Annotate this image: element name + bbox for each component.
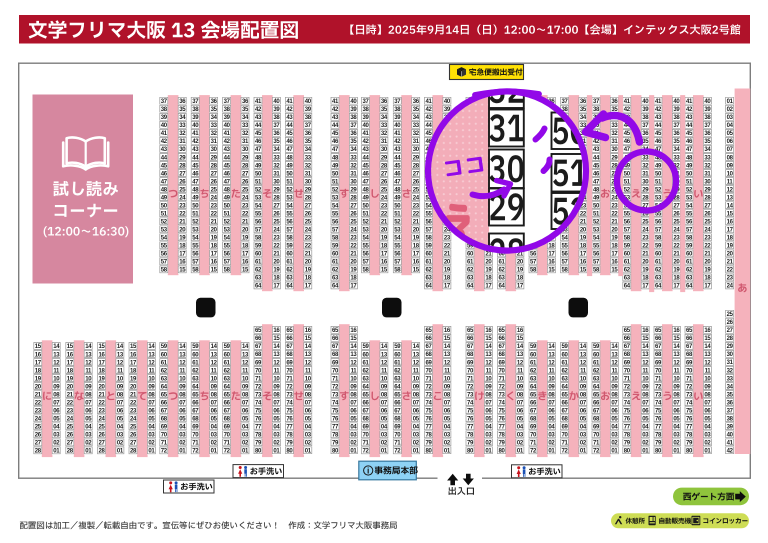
svg-text:72: 72 [332, 384, 339, 390]
svg-text:10: 10 [517, 376, 524, 382]
svg-text:15: 15 [548, 268, 555, 274]
svg-text:57: 57 [286, 228, 293, 234]
svg-text:24: 24 [350, 228, 357, 234]
svg-text:12: 12 [642, 360, 649, 366]
svg-text:27: 27 [704, 203, 711, 209]
svg-text:19: 19 [242, 236, 249, 242]
svg-text:62: 62 [655, 268, 662, 274]
svg-text:79: 79 [686, 441, 693, 447]
svg-text:10: 10 [727, 171, 734, 177]
svg-text:02: 02 [211, 441, 218, 447]
svg-text:39: 39 [161, 115, 168, 121]
svg-text:10: 10 [211, 376, 218, 382]
svg-text:24: 24 [673, 228, 680, 234]
svg-text:16: 16 [305, 328, 312, 334]
svg-text:73: 73 [686, 392, 693, 398]
svg-text:73: 73 [467, 392, 474, 398]
svg-text:06: 06 [642, 408, 649, 414]
svg-text:15: 15 [381, 268, 388, 274]
svg-text:61: 61 [530, 360, 537, 366]
svg-text:69: 69 [624, 360, 631, 366]
svg-text:18: 18 [673, 276, 680, 282]
svg-text:69: 69 [394, 425, 401, 431]
svg-text:30: 30 [381, 147, 388, 153]
svg-text:71: 71 [255, 376, 262, 382]
svg-text:78: 78 [499, 433, 506, 439]
svg-text:19: 19 [305, 268, 312, 274]
svg-text:13: 13 [673, 352, 680, 358]
svg-text:41: 41 [255, 99, 262, 105]
svg-text:09: 09 [148, 384, 155, 390]
svg-text:06: 06 [305, 408, 312, 414]
svg-text:63: 63 [499, 276, 506, 282]
svg-text:41: 41 [192, 131, 199, 137]
svg-text:01: 01 [580, 449, 587, 455]
svg-text:19: 19 [580, 236, 587, 242]
svg-text:16: 16 [704, 328, 711, 334]
svg-text:68: 68 [224, 417, 231, 423]
svg-text:30: 30 [413, 147, 420, 153]
svg-text:18: 18 [35, 368, 42, 374]
svg-text:10: 10 [242, 376, 249, 382]
svg-text:11: 11 [305, 368, 312, 374]
svg-text:21: 21 [673, 252, 680, 258]
svg-text:47: 47 [332, 147, 339, 153]
svg-text:56: 56 [624, 220, 631, 226]
svg-text:56: 56 [562, 252, 569, 258]
svg-text:53: 53 [224, 228, 231, 234]
svg-text:64: 64 [394, 384, 401, 390]
svg-text:45: 45 [192, 163, 199, 169]
svg-text:31: 31 [273, 171, 280, 177]
svg-text:71: 71 [426, 376, 433, 382]
svg-text:54: 54 [394, 236, 401, 242]
svg-text:50: 50 [224, 203, 231, 209]
svg-text:19: 19 [179, 236, 186, 242]
svg-text:23: 23 [273, 236, 280, 242]
svg-text:07: 07 [117, 401, 124, 407]
svg-text:45: 45 [161, 163, 168, 169]
svg-text:64: 64 [655, 284, 662, 290]
svg-text:09: 09 [381, 384, 388, 390]
svg-text:58: 58 [332, 236, 339, 242]
svg-text:08: 08 [517, 392, 524, 398]
svg-text:18: 18 [305, 276, 312, 282]
svg-text:28: 28 [381, 163, 388, 169]
svg-text:15: 15 [517, 336, 524, 342]
svg-text:08: 08 [673, 392, 680, 398]
svg-text:52: 52 [161, 220, 168, 226]
svg-text:02: 02 [350, 441, 357, 447]
svg-text:13: 13 [305, 352, 312, 358]
svg-text:01: 01 [305, 449, 312, 455]
svg-text:15: 15 [179, 268, 186, 274]
svg-text:67: 67 [655, 344, 662, 350]
svg-text:27: 27 [350, 203, 357, 209]
svg-text:54: 54 [224, 236, 231, 242]
svg-text:07: 07 [179, 401, 186, 407]
svg-text:51: 51 [593, 212, 600, 218]
svg-text:28: 28 [242, 163, 249, 169]
svg-text:69: 69 [332, 360, 339, 366]
svg-text:39: 39 [350, 107, 357, 113]
svg-text:22: 22 [273, 244, 280, 250]
svg-text:71: 71 [624, 376, 631, 382]
svg-text:65: 65 [394, 392, 401, 398]
svg-text:63: 63 [686, 276, 693, 282]
svg-text:77: 77 [286, 425, 293, 431]
svg-text:09: 09 [305, 384, 312, 390]
svg-text:30: 30 [242, 147, 249, 153]
svg-text:63: 63 [332, 276, 339, 282]
svg-text:10: 10 [148, 376, 155, 382]
svg-text:56: 56 [192, 252, 199, 258]
svg-text:59: 59 [332, 244, 339, 250]
svg-text:09: 09 [727, 163, 734, 169]
svg-text:12: 12 [242, 360, 249, 366]
svg-text:50: 50 [363, 203, 370, 209]
svg-text:54: 54 [286, 203, 293, 209]
svg-text:52: 52 [332, 187, 339, 193]
svg-text:68: 68 [593, 417, 600, 423]
svg-text:54: 54 [426, 203, 433, 209]
svg-text:40: 40 [192, 123, 199, 129]
svg-text:69: 69 [426, 360, 433, 366]
svg-text:25: 25 [673, 220, 680, 226]
svg-text:48: 48 [192, 187, 199, 193]
svg-text:50: 50 [286, 171, 293, 177]
svg-text:20: 20 [305, 260, 312, 266]
svg-text:14: 14 [580, 344, 587, 350]
svg-text:52: 52 [286, 187, 293, 193]
svg-text:58: 58 [655, 236, 662, 242]
svg-text:27: 27 [130, 441, 137, 447]
svg-text:59: 59 [686, 244, 693, 250]
svg-text:60: 60 [394, 352, 401, 358]
svg-text:14: 14 [517, 344, 524, 350]
svg-text:15: 15 [444, 336, 451, 342]
svg-text:73: 73 [332, 392, 339, 398]
svg-text:02: 02 [242, 441, 249, 447]
svg-text:12: 12 [485, 360, 492, 366]
svg-text:29: 29 [242, 155, 249, 161]
svg-text:61: 61 [686, 260, 693, 266]
svg-text:05: 05 [211, 417, 218, 423]
svg-text:23: 23 [642, 236, 649, 242]
svg-text:29: 29 [727, 344, 734, 350]
svg-text:64: 64 [426, 284, 433, 290]
svg-text:14: 14 [211, 344, 218, 350]
svg-text:61: 61 [426, 260, 433, 266]
svg-text:12: 12 [273, 360, 280, 366]
svg-text:20: 20 [727, 252, 734, 258]
svg-text:44: 44 [426, 123, 433, 129]
svg-text:43: 43 [224, 147, 231, 153]
svg-text:07: 07 [611, 401, 618, 407]
svg-text:46: 46 [363, 171, 370, 177]
svg-text:21: 21 [179, 220, 186, 226]
svg-text:04: 04 [53, 425, 60, 431]
svg-text:13: 13 [242, 352, 249, 358]
svg-text:32: 32 [242, 131, 249, 137]
svg-text:12: 12 [148, 360, 155, 366]
svg-text:64: 64 [224, 384, 231, 390]
svg-text:45: 45 [624, 131, 631, 137]
svg-text:33: 33 [273, 155, 280, 161]
svg-text:25: 25 [99, 425, 106, 431]
svg-text:54: 54 [686, 203, 693, 209]
svg-text:05: 05 [580, 417, 587, 423]
svg-text:13: 13 [85, 352, 92, 358]
svg-text:18: 18 [350, 276, 357, 282]
svg-text:03: 03 [179, 433, 186, 439]
svg-text:43: 43 [255, 115, 262, 121]
svg-text:10: 10 [305, 376, 312, 382]
svg-text:14: 14 [242, 344, 249, 350]
svg-text:03: 03 [381, 433, 388, 439]
svg-text:01: 01 [273, 449, 280, 455]
svg-text:06: 06 [273, 408, 280, 414]
svg-text:55: 55 [655, 212, 662, 218]
svg-text:21: 21 [727, 260, 734, 266]
svg-text:40: 40 [305, 99, 312, 105]
svg-text:42: 42 [363, 139, 370, 145]
svg-text:23: 23 [305, 236, 312, 242]
svg-text:17: 17 [305, 284, 312, 290]
svg-text:73: 73 [426, 392, 433, 398]
svg-text:34: 34 [381, 115, 388, 121]
svg-text:34: 34 [179, 115, 186, 121]
svg-text:16: 16 [673, 328, 680, 334]
svg-text:04: 04 [580, 425, 587, 431]
svg-text:12: 12 [211, 360, 218, 366]
svg-text:24: 24 [305, 228, 312, 234]
svg-text:40: 40 [350, 99, 357, 105]
svg-text:31: 31 [727, 360, 734, 366]
svg-text:45: 45 [593, 163, 600, 169]
svg-text:63: 63 [255, 276, 262, 282]
svg-text:65: 65 [332, 328, 339, 334]
svg-text:74: 74 [686, 400, 693, 406]
svg-text:45: 45 [426, 131, 433, 137]
svg-text:17: 17 [413, 252, 420, 258]
svg-text:43: 43 [332, 115, 339, 121]
svg-text:04: 04 [305, 425, 312, 431]
svg-text:55: 55 [426, 212, 433, 218]
svg-text:62: 62 [224, 368, 231, 374]
svg-text:21: 21 [704, 252, 711, 258]
svg-text:05: 05 [485, 417, 492, 423]
svg-text:08: 08 [117, 392, 124, 398]
svg-text:04: 04 [548, 425, 555, 431]
svg-text:71: 71 [363, 441, 370, 447]
svg-text:02: 02 [580, 441, 587, 447]
svg-text:72: 72 [286, 384, 293, 390]
svg-text:04: 04 [242, 425, 249, 431]
svg-text:62: 62 [426, 268, 433, 274]
svg-text:73: 73 [655, 392, 662, 398]
svg-text:i: i [367, 466, 369, 476]
svg-text:08: 08 [611, 392, 618, 398]
svg-text:71: 71 [562, 441, 569, 447]
svg-text:67: 67 [467, 344, 474, 350]
svg-text:08: 08 [642, 392, 649, 398]
svg-text:12: 12 [381, 360, 388, 366]
svg-text:27: 27 [211, 171, 218, 177]
svg-text:10: 10 [642, 376, 649, 382]
svg-text:45: 45 [255, 131, 262, 137]
svg-text:06: 06 [381, 409, 388, 415]
svg-text:08: 08 [179, 392, 186, 398]
svg-text:24: 24 [67, 417, 74, 423]
svg-text:26: 26 [413, 179, 420, 185]
svg-text:09: 09 [611, 384, 618, 390]
svg-text:28: 28 [211, 163, 218, 169]
svg-text:17: 17 [727, 228, 734, 234]
svg-text:60: 60 [530, 352, 537, 358]
svg-text:46: 46 [161, 171, 168, 177]
svg-text:08: 08 [53, 392, 60, 398]
svg-text:74: 74 [467, 400, 474, 406]
svg-text:21: 21 [350, 252, 357, 258]
svg-text:39: 39 [363, 115, 370, 121]
svg-text:65: 65 [161, 392, 168, 398]
svg-text:37: 37 [161, 99, 168, 105]
svg-text:13: 13 [381, 352, 388, 358]
svg-text:60: 60 [224, 352, 231, 358]
svg-text:66: 66 [286, 336, 293, 342]
svg-text:65: 65 [426, 328, 433, 334]
svg-text:17: 17 [517, 284, 524, 290]
svg-text:43: 43 [286, 115, 293, 121]
svg-text:21: 21 [67, 392, 74, 398]
svg-text:35: 35 [242, 107, 249, 113]
svg-text:42: 42 [192, 139, 199, 145]
svg-text:37: 37 [394, 99, 401, 105]
svg-text:43: 43 [655, 115, 662, 121]
svg-text:36: 36 [381, 99, 388, 105]
svg-text:63: 63 [593, 376, 600, 382]
svg-text:05: 05 [242, 417, 249, 423]
svg-text:05: 05 [517, 417, 524, 423]
svg-text:39: 39 [704, 107, 711, 113]
svg-text:55: 55 [161, 244, 168, 250]
svg-text:07: 07 [211, 401, 218, 407]
svg-text:48: 48 [161, 187, 168, 193]
svg-text:30: 30 [611, 147, 618, 153]
svg-text:07: 07 [148, 401, 155, 407]
svg-text:36: 36 [350, 131, 357, 137]
svg-text:21: 21 [444, 252, 451, 258]
svg-text:53: 53 [255, 195, 262, 201]
svg-text:20: 20 [350, 260, 357, 266]
svg-text:13: 13 [727, 195, 734, 201]
svg-text:64: 64 [686, 284, 693, 290]
svg-text:27: 27 [727, 328, 734, 334]
svg-text:26: 26 [381, 179, 388, 185]
svg-text:02: 02 [485, 441, 492, 447]
svg-text:65: 65 [562, 392, 569, 398]
svg-text:06: 06 [242, 409, 249, 415]
svg-text:21: 21 [305, 252, 312, 258]
svg-text:20: 20 [673, 260, 680, 266]
svg-text:01: 01 [413, 449, 420, 455]
svg-text:12: 12 [517, 360, 524, 366]
svg-text:18: 18 [444, 276, 451, 282]
svg-text:54: 54 [161, 236, 168, 242]
svg-text:13: 13 [350, 352, 357, 358]
svg-text:12: 12 [179, 360, 186, 366]
svg-text:23: 23 [99, 409, 106, 415]
svg-text:56: 56 [286, 220, 293, 226]
svg-text:73: 73 [286, 392, 293, 398]
svg-text:08: 08 [273, 392, 280, 398]
svg-text:07: 07 [642, 400, 649, 406]
svg-text:11: 11 [705, 368, 712, 374]
svg-text:02: 02 [548, 441, 555, 447]
svg-text:63: 63 [467, 276, 474, 282]
svg-text:80: 80 [426, 449, 433, 455]
svg-text:26: 26 [211, 179, 218, 185]
svg-text:20: 20 [35, 384, 42, 390]
svg-text:10: 10 [85, 376, 92, 382]
svg-text:22: 22 [673, 244, 680, 250]
svg-text:70: 70 [332, 368, 339, 374]
svg-text:19: 19 [67, 376, 74, 382]
svg-text:39: 39 [224, 115, 231, 121]
svg-text:64: 64 [332, 284, 339, 290]
svg-text:02: 02 [727, 107, 734, 113]
svg-text:77: 77 [655, 425, 662, 431]
svg-text:66: 66 [467, 336, 474, 342]
svg-text:43: 43 [394, 147, 401, 153]
svg-text:01: 01 [242, 449, 249, 455]
svg-text:11: 11 [549, 368, 556, 374]
svg-text:47: 47 [255, 147, 262, 153]
svg-text:29: 29 [704, 187, 711, 193]
svg-text:22: 22 [179, 212, 186, 218]
svg-text:40: 40 [673, 99, 680, 105]
svg-text:04: 04 [350, 425, 357, 431]
svg-text:11: 11 [580, 368, 587, 374]
svg-text:25: 25 [242, 187, 249, 193]
svg-text:31: 31 [642, 171, 649, 177]
svg-text:47: 47 [624, 147, 631, 153]
svg-text:62: 62 [255, 268, 262, 274]
svg-text:24: 24 [273, 228, 280, 234]
svg-text:67: 67 [224, 409, 231, 415]
svg-text:03: 03 [148, 433, 155, 439]
svg-text:42: 42 [624, 107, 631, 113]
svg-text:12: 12 [548, 360, 555, 366]
svg-text:09: 09 [85, 384, 92, 390]
svg-text:11: 11 [413, 368, 420, 374]
svg-text:50: 50 [192, 203, 199, 209]
svg-text:47: 47 [161, 179, 168, 185]
svg-text:30: 30 [211, 147, 218, 153]
svg-text:06: 06 [350, 408, 357, 414]
svg-text:65: 65 [192, 392, 199, 398]
svg-text:80: 80 [499, 449, 506, 455]
svg-text:06: 06 [179, 409, 186, 415]
svg-text:01: 01 [727, 99, 734, 105]
svg-text:42: 42 [593, 139, 600, 145]
svg-text:72: 72 [255, 384, 262, 390]
svg-text:04: 04 [444, 425, 451, 431]
svg-text:50: 50 [624, 171, 631, 177]
svg-text:03: 03 [642, 433, 649, 439]
svg-text:42: 42 [255, 107, 262, 113]
